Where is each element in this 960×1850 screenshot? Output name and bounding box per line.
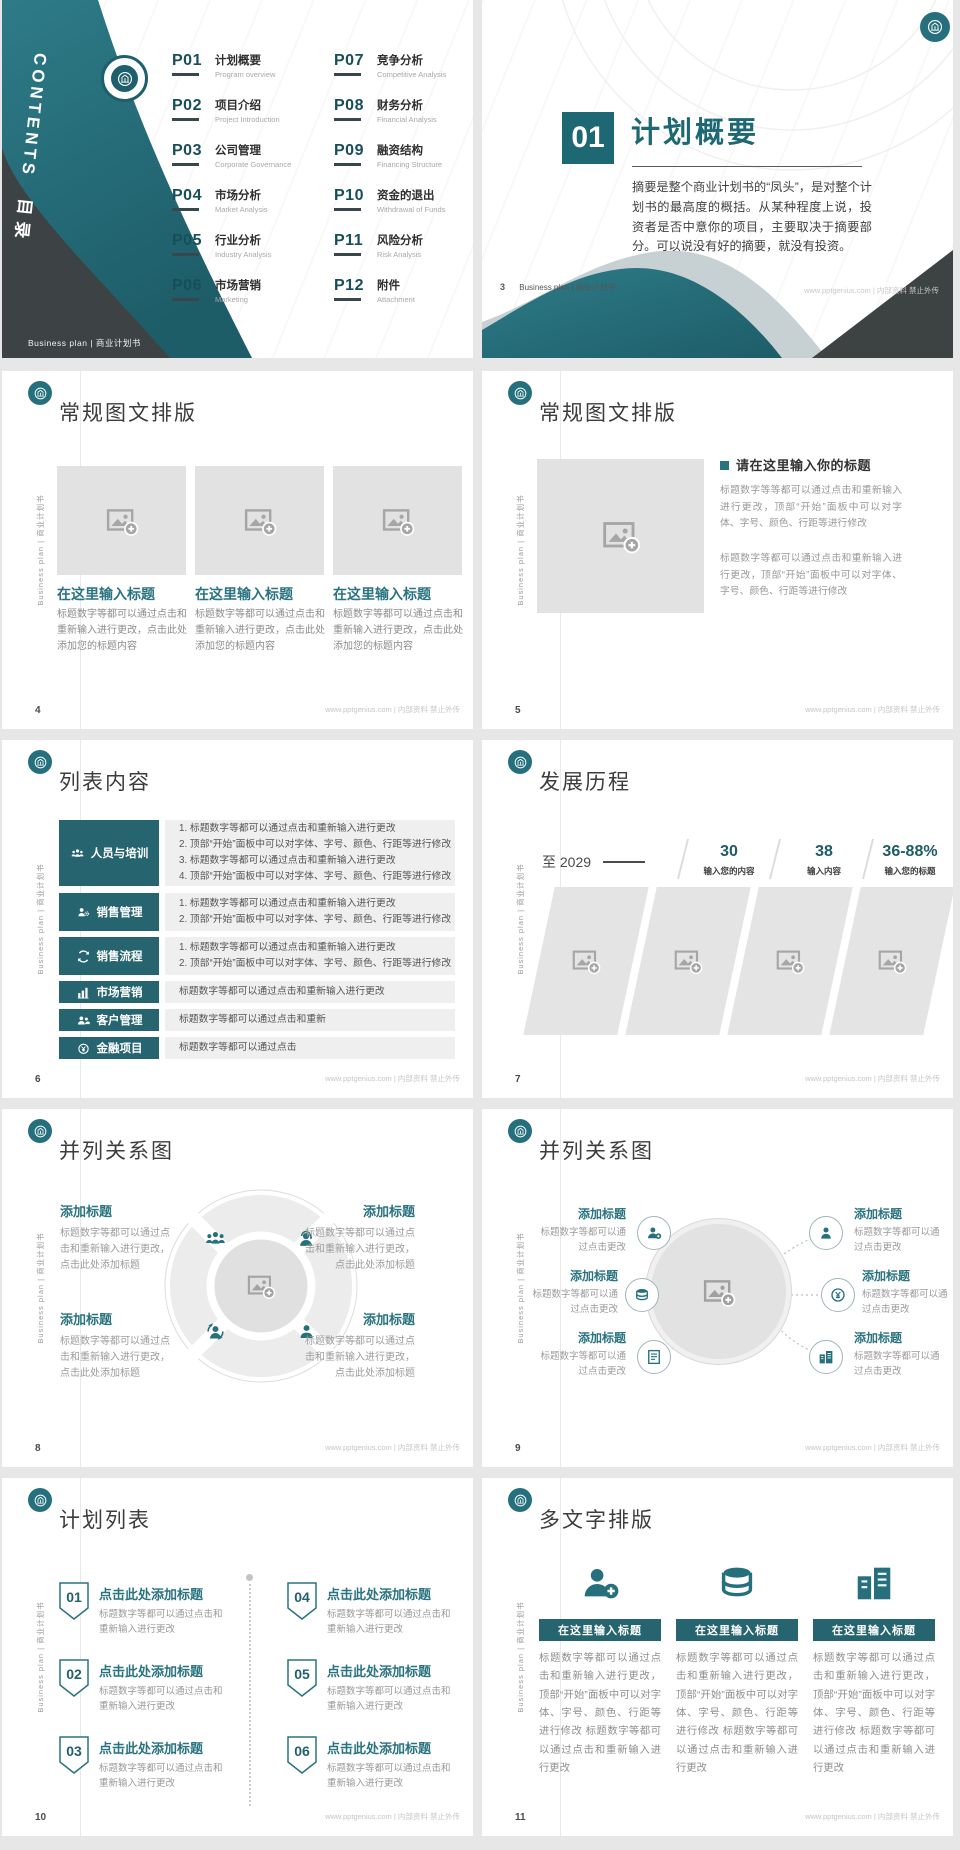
toc-cn: 附件 bbox=[377, 277, 415, 293]
item-body: 标题数字等都可以通过点击和重新输入进行更改 bbox=[99, 1685, 231, 1714]
badge-number: 04 bbox=[294, 1589, 310, 1605]
item-body: 标题数字等都可以通过点击和重新输入进行更改 bbox=[327, 1608, 459, 1637]
toc-num: P07 bbox=[334, 52, 370, 70]
footer-left: 3 Business plan | 商业计划书 bbox=[500, 282, 616, 293]
column-body: 标题数字等都可以通过点击和重新输入进行更改，顶部“开始”面板中可以对字体、字号、… bbox=[676, 1650, 798, 1778]
sidebar-brand-text: Business plan | 商业计划书 bbox=[35, 1601, 46, 1712]
university-emblem-icon bbox=[111, 65, 138, 92]
badge-number: 03 bbox=[66, 1743, 82, 1759]
toc-cn: 竞争分析 bbox=[377, 52, 446, 68]
list-label: 客户管理 bbox=[59, 1009, 159, 1031]
block-body: 标题数字等都可以通过点击更改 bbox=[540, 1226, 626, 1255]
toc-item[interactable]: P07竞争分析Competitive Analysis bbox=[334, 52, 473, 97]
relation-block: 添加标题 标题数字等都可以通过点击更改 bbox=[540, 1329, 626, 1379]
stat-label: 输入您的内容 bbox=[685, 865, 773, 877]
footer-site-text: www.pptgenius.com | 内部资料 禁止外传 bbox=[325, 704, 460, 715]
relation-block: 添加标题 标题数字等都可以通过点击和重新输入进行更改，点击此处添加标题 bbox=[305, 1309, 415, 1382]
number-badge: 06 bbox=[287, 1736, 317, 1774]
toc-cn: 市场分析 bbox=[215, 187, 268, 203]
plan-item: 03 点击此处添加标题 标题数字等都可以通过点击和重新输入进行更改 bbox=[59, 1736, 235, 1791]
slide-section-01[interactable]: 01 计划概要 摘要是整个商业计划书的“凤头”，是对整个计划书的最高度的概括。从… bbox=[482, 0, 953, 358]
plan-item: 05 点击此处添加标题 标题数字等都可以通过点击和重新输入进行更改 bbox=[287, 1659, 463, 1714]
toc-num: P09 bbox=[334, 142, 370, 160]
list-line: 标题数字等都可以通过点击 bbox=[179, 1040, 455, 1056]
toc-cn: 公司管理 bbox=[215, 142, 291, 158]
text-column: 在这里输入标题 标题数字等都可以通过点击和重新输入进行更改，顶部“开始”面板中可… bbox=[813, 1554, 935, 1778]
toc-cn: 项目介绍 bbox=[215, 97, 280, 113]
item-title: 点击此处添加标题 bbox=[327, 1738, 459, 1757]
item-title: 在这里输入标题 bbox=[57, 584, 189, 604]
plan-item: 01 点击此处添加标题 标题数字等都可以通过点击和重新输入进行更改 bbox=[59, 1582, 235, 1637]
list-line: 1. 标题数字等都可以通过点击和重新输入进行更改 bbox=[179, 896, 455, 912]
column-body: 标题数字等都可以通过点击和重新输入进行更改，顶部“开始”面板中可以对字体、字号、… bbox=[539, 1650, 661, 1778]
sidebar-brand-text: Business plan | 商业计划书 bbox=[35, 863, 46, 974]
toc-num: P06 bbox=[172, 277, 208, 295]
toc-cn: 风险分析 bbox=[377, 232, 423, 248]
block-title: 添加标题 bbox=[305, 1201, 415, 1220]
toc-item[interactable]: P05行业分析Industry Analysis bbox=[172, 232, 334, 277]
relation-block: 添加标题 标题数字等都可以通过点击更改 bbox=[854, 1205, 940, 1255]
list-line: 2. 顶部“开始”面板中可以对字体、字号、颜色、行距等进行修改 bbox=[179, 956, 455, 972]
timeline-stat: 30 输入您的内容 bbox=[685, 843, 773, 877]
block-title: 添加标题 bbox=[540, 1205, 626, 1222]
relation-block: 添加标题 标题数字等都可以通过点击更改 bbox=[540, 1205, 626, 1255]
relation-block: 添加标题 标题数字等都可以通过点击更改 bbox=[854, 1329, 940, 1379]
number-badge: 03 bbox=[59, 1736, 89, 1774]
list-label-text: 销售流程 bbox=[97, 948, 143, 964]
sidebar-brand-text: Business plan | 商业计划书 bbox=[515, 863, 526, 974]
list-label-text: 客户管理 bbox=[97, 1012, 143, 1028]
image-placeholder bbox=[195, 466, 324, 575]
toc-en: Marketing bbox=[215, 295, 261, 304]
toc-item[interactable]: P12附件Attachment bbox=[334, 277, 473, 322]
brand-logo bbox=[28, 1119, 52, 1143]
footer-site-text: www.pptgenius.com | 内部资料 禁止外传 bbox=[805, 1811, 940, 1822]
column-header: 在这里输入标题 bbox=[676, 1619, 798, 1641]
list-lines: 1. 标题数字等都可以通过点击和重新输入进行更改 2. 顶部“开始”面板中可以对… bbox=[165, 893, 455, 931]
slide-toc[interactable]: CONTENTS 目录 P01计划概要Program overview P02项… bbox=[2, 0, 473, 358]
list-line: 标题数字等都可以通过点击和重新 bbox=[179, 1012, 455, 1028]
badge-number: 05 bbox=[294, 1666, 310, 1682]
slide-title: 发展历程 bbox=[539, 766, 631, 796]
bullet-square bbox=[720, 461, 729, 470]
document-icon bbox=[637, 1340, 671, 1374]
toc-cn: 资金的退出 bbox=[377, 187, 445, 203]
item-title: 点击此处添加标题 bbox=[99, 1584, 231, 1603]
list-line: 3. 标题数字等都可以通过点击和重新输入进行更改 bbox=[179, 853, 455, 869]
block-paragraph: 标题数字等都可以通过点击和重新输入进行更改，顶部“开始”面板中可以对字体、字号、… bbox=[720, 551, 902, 601]
building-icon bbox=[813, 1554, 935, 1612]
item-title: 点击此处添加标题 bbox=[99, 1661, 231, 1680]
slide-relation-six[interactable]: Business plan | 商业计划书 并列关系图 添加标题 标题数字等都可… bbox=[482, 1109, 953, 1467]
stat-value: 38 bbox=[778, 843, 870, 861]
item-body: 标题数字等都可以通过点击和重新输入进行更改，点击此处添加您的标题内容 bbox=[195, 607, 327, 655]
item-body: 标题数字等都可以通过点击和重新输入进行更改 bbox=[99, 1608, 231, 1637]
sync-arrows-icon bbox=[76, 949, 91, 964]
university-logo bbox=[920, 12, 950, 42]
toc-en: Market Analysis bbox=[215, 205, 268, 214]
block-title: 添加标题 bbox=[60, 1201, 170, 1220]
footer-brand-text: Business plan | 商业计划书 bbox=[28, 337, 141, 349]
toc-item[interactable]: P08财务分析Financial Analysis bbox=[334, 97, 473, 142]
brand-logo bbox=[28, 750, 52, 774]
plan-item: 06 点击此处添加标题 标题数字等都可以通过点击和重新输入进行更改 bbox=[287, 1736, 463, 1791]
relation-block: 添加标题 标题数字等都可以通过点击和重新输入进行更改，点击此处添加标题 bbox=[60, 1201, 170, 1274]
column-body: 标题数字等都可以通过点击和重新输入进行更改，顶部“开始”面板中可以对字体、字号、… bbox=[813, 1650, 935, 1778]
block-paragraph: 标题数字等等都可以通过点击和重新输入进行更改，顶部“开始”面板中可以对字体、字号… bbox=[720, 483, 902, 533]
brand-logo bbox=[508, 1488, 532, 1512]
toc-item[interactable]: P04市场分析Market Analysis bbox=[172, 187, 334, 232]
toc-list: P01计划概要Program overview P02项目介绍Project I… bbox=[172, 52, 473, 322]
badge-number: 02 bbox=[66, 1666, 82, 1682]
list-line: 标题数字等都可以通过点击和重新输入进行更改 bbox=[179, 984, 455, 1000]
slide-relation-four[interactable]: Business plan | 商业计划书 并列关系图 添加标题 标题数字等都可… bbox=[2, 1109, 473, 1467]
section-number: 01 bbox=[562, 112, 614, 164]
footer-site-text: www.pptgenius.com | 内部资料 禁止外传 bbox=[805, 1442, 940, 1453]
toc-en: Attachment bbox=[377, 295, 415, 304]
block-title: 添加标题 bbox=[532, 1267, 618, 1284]
block-body: 标题数字等都可以通过点击更改 bbox=[862, 1288, 948, 1317]
brand-logo bbox=[28, 381, 52, 405]
toc-num: P11 bbox=[334, 232, 370, 250]
footer-site-text: www.pptgenius.com | 内部资料 禁止外传 bbox=[804, 285, 939, 296]
page-number: 11 bbox=[515, 1812, 526, 1823]
block-title: 添加标题 bbox=[540, 1329, 626, 1346]
toc-en: Financing Structure bbox=[377, 160, 442, 169]
image-placeholder bbox=[537, 459, 704, 613]
page-number: 6 bbox=[35, 1074, 41, 1085]
slide-title: 多文字排版 bbox=[539, 1504, 654, 1534]
list-label: 市场营销 bbox=[59, 981, 159, 1003]
sidebar-brand-text: Business plan | 商业计划书 bbox=[515, 1601, 526, 1712]
list-line: 1. 标题数字等都可以通过点击和重新输入进行更改 bbox=[179, 940, 455, 956]
building-icon bbox=[809, 1340, 843, 1374]
slide-title: 常规图文排版 bbox=[539, 397, 677, 427]
coins-icon bbox=[625, 1278, 659, 1312]
toc-num: P10 bbox=[334, 187, 370, 205]
timeline-stat: 38 输入内容 bbox=[778, 843, 870, 877]
list-label-text: 金融项目 bbox=[97, 1040, 143, 1056]
finance-icon bbox=[76, 1041, 91, 1056]
block-body: 标题数字等都可以通过点击和重新输入进行更改，点击此处添加标题 bbox=[305, 1334, 415, 1382]
toc-en: Competitive Analysis bbox=[377, 70, 446, 79]
badge-number: 01 bbox=[66, 1589, 82, 1605]
block-body: 标题数字等都可以通过点击更改 bbox=[854, 1350, 940, 1379]
item-body: 标题数字等都可以通过点击和重新输入进行更改，点击此处添加您的标题内容 bbox=[333, 607, 465, 655]
block-body: 标题数字等都可以通过点击和重新输入进行更改，点击此处添加标题 bbox=[60, 1334, 170, 1382]
toc-en: Program overview bbox=[215, 70, 275, 79]
toc-cn-label: 目录 bbox=[10, 197, 40, 245]
sidebar-brand-text: Business plan | 商业计划书 bbox=[35, 1232, 46, 1343]
list-label: 销售流程 bbox=[59, 937, 159, 975]
toc-item[interactable]: P10资金的退出Withdrawal of Funds bbox=[334, 187, 473, 232]
toc-num: P04 bbox=[172, 187, 208, 205]
item-title: 点击此处添加标题 bbox=[327, 1584, 459, 1603]
money-icon bbox=[821, 1278, 855, 1312]
block-heading: 请在这里输入你的标题 bbox=[736, 455, 871, 474]
footer-site-text: www.pptgenius.com | 内部资料 禁止外传 bbox=[325, 1811, 460, 1822]
block-title: 添加标题 bbox=[305, 1309, 415, 1328]
list-label-text: 人员与培训 bbox=[91, 845, 149, 861]
slide-title: 列表内容 bbox=[59, 766, 151, 796]
relation-block: 添加标题 标题数字等都可以通过点击和重新输入进行更改，点击此处添加标题 bbox=[60, 1309, 170, 1382]
slide-plan-list[interactable]: Business plan | 商业计划书 计划列表 01 点击此处添加标题 标… bbox=[2, 1478, 473, 1836]
customers-icon bbox=[76, 1013, 91, 1028]
person-add-icon bbox=[539, 1554, 661, 1612]
toc-en: Corporate Governance bbox=[215, 160, 291, 169]
toc-item[interactable]: P02项目介绍Project Introduction bbox=[172, 97, 334, 142]
slide-title: 计划列表 bbox=[59, 1504, 151, 1534]
toc-en: Financial Analysis bbox=[377, 115, 437, 124]
list-line: 2. 顶部“开始”面板中可以对字体、字号、颜色、行距等进行修改 bbox=[179, 837, 455, 853]
slide-multi-text[interactable]: Business plan | 商业计划书 多文字排版 在这里输入标题 标题数字… bbox=[482, 1478, 953, 1836]
toc-cn: 市场营销 bbox=[215, 277, 261, 293]
item-body: 标题数字等都可以通过点击和重新输入进行更改，点击此处添加您的标题内容 bbox=[57, 607, 189, 655]
brand-logo bbox=[508, 381, 532, 405]
toc-num: P05 bbox=[172, 232, 208, 250]
timeline-stat: 36-88% 输入您的标题 bbox=[870, 843, 950, 877]
block-title: 添加标题 bbox=[862, 1267, 948, 1284]
title-underline bbox=[632, 166, 862, 167]
stat-value: 36-88% bbox=[870, 843, 950, 861]
toc-en: Project Introduction bbox=[215, 115, 280, 124]
item-title: 点击此处添加标题 bbox=[327, 1661, 459, 1680]
toc-cn: 计划概要 bbox=[215, 52, 275, 68]
team-icon bbox=[70, 846, 85, 861]
item-title: 点击此处添加标题 bbox=[99, 1738, 231, 1757]
dotted-separator bbox=[249, 1584, 251, 1806]
section-title: 计划概要 bbox=[631, 109, 759, 151]
list-line: 1. 标题数字等都可以通过点击和重新输入进行更改 bbox=[179, 821, 455, 837]
footer-site-text: www.pptgenius.com | 内部资料 禁止外传 bbox=[805, 1073, 940, 1084]
stat-label: 输入内容 bbox=[778, 865, 870, 877]
column-header: 在这里输入标题 bbox=[539, 1619, 661, 1641]
toc-num: P02 bbox=[172, 97, 208, 115]
toc-cn: 财务分析 bbox=[377, 97, 437, 113]
item-body: 标题数字等都可以通过点击和重新输入进行更改 bbox=[99, 1762, 231, 1791]
coins-icon bbox=[676, 1554, 798, 1612]
list-label: 金融项目 bbox=[59, 1037, 159, 1059]
item-title: 在这里输入标题 bbox=[195, 584, 327, 604]
number-badge: 05 bbox=[287, 1659, 317, 1697]
list-label: 销售管理 bbox=[59, 893, 159, 931]
stat-value: 30 bbox=[685, 843, 773, 861]
number-badge: 04 bbox=[287, 1582, 317, 1620]
toc-en: Risk Analysis bbox=[377, 250, 423, 259]
slide-title: 常规图文排版 bbox=[59, 397, 197, 427]
relation-block: 添加标题 标题数字等都可以通过点击更改 bbox=[862, 1267, 948, 1317]
footer-brand-text: Business plan | 商业计划书 bbox=[519, 283, 615, 292]
list-label: 人员与培训 bbox=[59, 820, 159, 886]
column-header: 在这里输入标题 bbox=[813, 1619, 935, 1641]
badge-number: 06 bbox=[294, 1743, 310, 1759]
list-line: 4. 顶部“开始”面板中可以对字体、字号、颜色、行距等进行修改 bbox=[179, 869, 455, 885]
slide-title: 并列关系图 bbox=[59, 1135, 174, 1165]
toc-en: Industry Analysis bbox=[215, 250, 271, 259]
item-body: 标题数字等都可以通过点击和重新输入进行更改 bbox=[327, 1762, 459, 1791]
list-lines: 标题数字等都可以通过点击 bbox=[165, 1037, 455, 1059]
list-label-text: 市场营销 bbox=[97, 984, 143, 1000]
footer-site-text: www.pptgenius.com | 内部资料 禁止外传 bbox=[325, 1073, 460, 1084]
toc-cn: 行业分析 bbox=[215, 232, 271, 248]
university-logo bbox=[101, 55, 148, 102]
slide-image-text[interactable]: Business plan | 商业计划书 常规图文排版 请在这里输入你的标题 … bbox=[482, 371, 953, 729]
page-number: 7 bbox=[515, 1074, 521, 1085]
toc-item[interactable]: P03公司管理Corporate Governance bbox=[172, 142, 334, 187]
page-number: 5 bbox=[515, 705, 521, 716]
year-dash bbox=[603, 861, 645, 863]
timeline-year-text: 至 2029 bbox=[542, 854, 591, 870]
footer-site-text: www.pptgenius.com | 内部资料 禁止外传 bbox=[805, 704, 940, 715]
template-preview-grid: CONTENTS 目录 P01计划概要Program overview P02项… bbox=[0, 0, 960, 1850]
page-number: 4 bbox=[35, 705, 41, 716]
plan-item: 02 点击此处添加标题 标题数字等都可以通过点击和重新输入进行更改 bbox=[59, 1659, 235, 1714]
block-body: 标题数字等都可以通过点击更改 bbox=[854, 1226, 940, 1255]
block-body: 标题数字等都可以通过点击和重新输入进行更改，点击此处添加标题 bbox=[60, 1226, 170, 1274]
block-body: 标题数字等都可以通过点击更改 bbox=[532, 1288, 618, 1317]
brand-logo bbox=[28, 1488, 52, 1512]
number-badge: 02 bbox=[59, 1659, 89, 1697]
slide-gallery-three[interactable]: Business plan | 商业计划书 常规图文排版 在这里输入标题 在这里… bbox=[2, 371, 473, 729]
toc-item[interactable]: P06市场营销Marketing bbox=[172, 277, 334, 322]
page-number: 9 bbox=[515, 1443, 521, 1454]
block-title: 添加标题 bbox=[854, 1205, 940, 1222]
plan-item: 04 点击此处添加标题 标题数字等都可以通过点击和重新输入进行更改 bbox=[287, 1582, 463, 1637]
list-lines: 标题数字等都可以通过点击和重新 bbox=[165, 1009, 455, 1031]
page-number: 8 bbox=[35, 1443, 41, 1454]
list-line: 2. 顶部“开始”面板中可以对字体、字号、颜色、行距等进行修改 bbox=[179, 912, 455, 928]
toc-item[interactable]: P11风险分析Risk Analysis bbox=[334, 232, 473, 277]
image-placeholder bbox=[57, 466, 186, 575]
page-number: 10 bbox=[35, 1812, 46, 1823]
toc-en: Withdrawal of Funds bbox=[377, 205, 445, 214]
relation-block: 添加标题 标题数字等都可以通过点击和重新输入进行更改，点击此处添加标题 bbox=[305, 1201, 415, 1274]
item-body: 标题数字等都可以通过点击和重新输入进行更改 bbox=[327, 1685, 459, 1714]
block-body: 标题数字等都可以通过点击和重新输入进行更改，点击此处添加标题 bbox=[305, 1226, 415, 1274]
toc-num: P08 bbox=[334, 97, 370, 115]
list-lines: 1. 标题数字等都可以通过点击和重新输入进行更改 2. 顶部“开始”面板中可以对… bbox=[165, 820, 455, 886]
toc-item[interactable]: P01计划概要Program overview bbox=[172, 52, 334, 97]
timeline-panels bbox=[539, 887, 939, 1035]
toc-num: P01 bbox=[172, 52, 208, 70]
list-lines: 标题数字等都可以通过点击和重新输入进行更改 bbox=[165, 981, 455, 1003]
person-add-icon bbox=[637, 1216, 671, 1250]
footer-site-text: www.pptgenius.com | 内部资料 禁止外传 bbox=[325, 1442, 460, 1453]
bar-chart-icon bbox=[76, 985, 91, 1000]
person-icon bbox=[809, 1216, 843, 1250]
list-lines: 1. 标题数字等都可以通过点击和重新输入进行更改 2. 顶部“开始”面板中可以对… bbox=[165, 937, 455, 975]
page-number: 3 bbox=[500, 282, 505, 292]
number-badge: 01 bbox=[59, 1582, 89, 1620]
toc-cn: 融资结构 bbox=[377, 142, 442, 158]
text-column: 在这里输入标题 标题数字等都可以通过点击和重新输入进行更改，顶部“开始”面板中可… bbox=[539, 1554, 661, 1778]
slide-list[interactable]: Business plan | 商业计划书 列表内容 人员与培训 1. 标题数字… bbox=[2, 740, 473, 1098]
brand-logo bbox=[508, 750, 532, 774]
relation-block: 添加标题 标题数字等都可以通过点击更改 bbox=[532, 1267, 618, 1317]
sidebar-brand-text: Business plan | 商业计划书 bbox=[515, 494, 526, 605]
slide-timeline[interactable]: Business plan | 商业计划书 发展历程 至 2029 30 输入您… bbox=[482, 740, 953, 1098]
block-title: 添加标题 bbox=[854, 1329, 940, 1346]
image-placeholder bbox=[333, 466, 462, 575]
sidebar-brand-text: Business plan | 商业计划书 bbox=[35, 494, 46, 605]
person-gear-icon bbox=[76, 905, 91, 920]
stat-label: 输入您的标题 bbox=[870, 865, 950, 877]
section-body-text: 摘要是整个商业计划书的“凤头”，是对整个计划书的最高度的概括。从某种程度上说，投… bbox=[632, 178, 872, 257]
block-body: 标题数字等都可以通过点击更改 bbox=[540, 1350, 626, 1379]
block-title: 添加标题 bbox=[60, 1309, 170, 1328]
list-label-text: 销售管理 bbox=[97, 904, 143, 920]
toc-item[interactable]: P09融资结构Financing Structure bbox=[334, 142, 473, 187]
text-column: 在这里输入标题 标题数字等都可以通过点击和重新输入进行更改，顶部“开始”面板中可… bbox=[676, 1554, 798, 1778]
toc-num: P12 bbox=[334, 277, 370, 295]
separator-dot bbox=[246, 1574, 253, 1581]
item-title: 在这里输入标题 bbox=[333, 584, 465, 604]
timeline-year: 至 2029 bbox=[542, 852, 645, 872]
toc-num: P03 bbox=[172, 142, 208, 160]
